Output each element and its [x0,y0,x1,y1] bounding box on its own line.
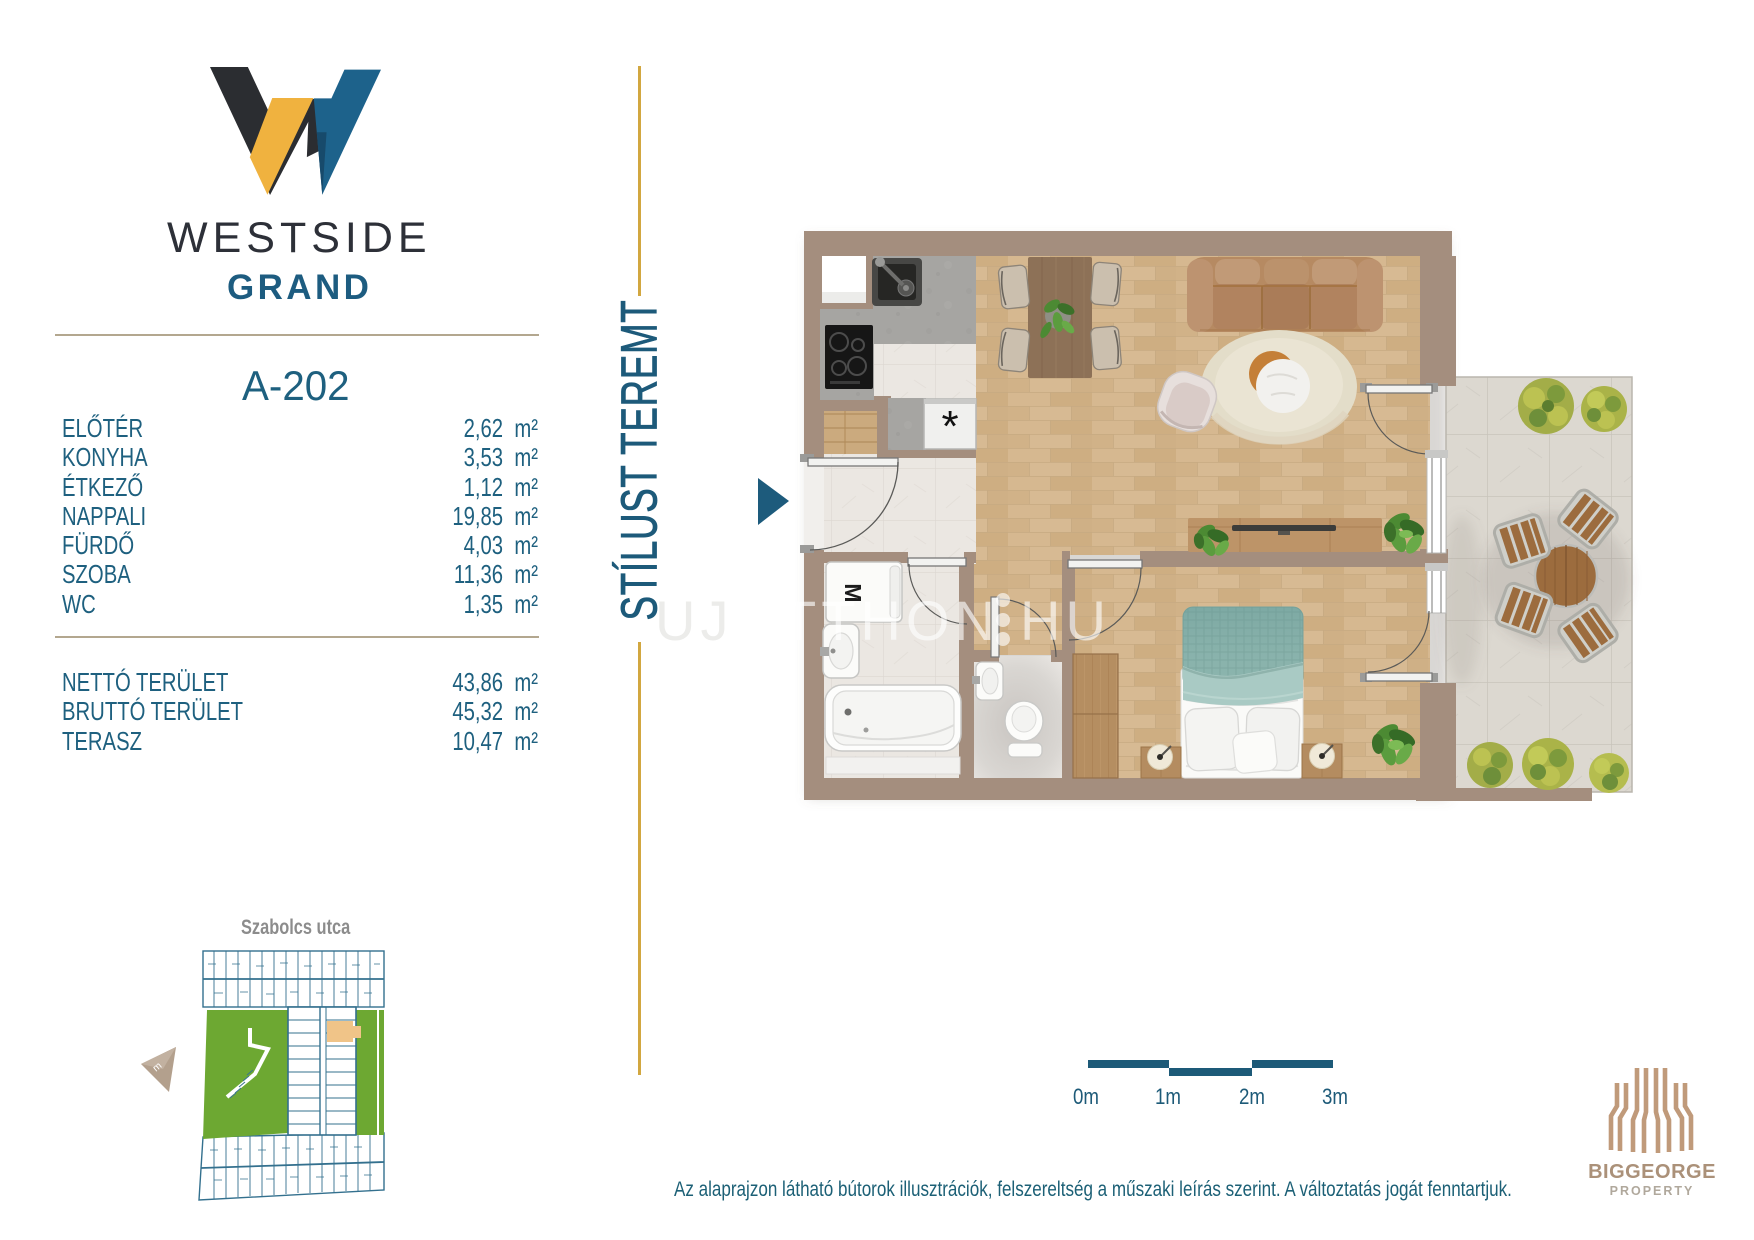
svg-text:*: * [941,402,958,451]
svg-text:HU: HU [1020,589,1111,652]
svg-text:UJ: UJ [655,589,733,652]
